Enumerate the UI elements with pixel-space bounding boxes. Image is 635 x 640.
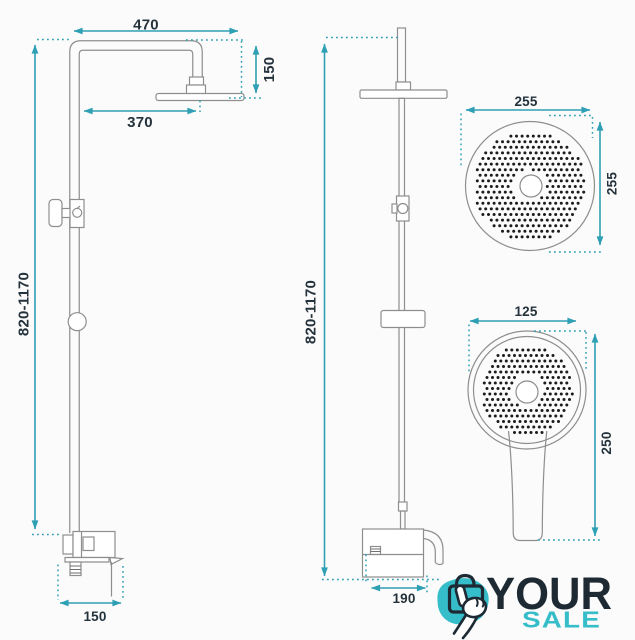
head-connector-icon <box>190 77 204 85</box>
slider-nub-front <box>392 204 397 213</box>
dim-label-height-range: 820-1170 <box>16 272 33 336</box>
rain-head-center-hole <box>520 175 542 197</box>
lower-pipe <box>399 98 405 502</box>
hand-shower-detail: 125 250 <box>468 304 614 541</box>
mixer-base-plate <box>65 558 109 563</box>
rain-head-front <box>360 90 447 98</box>
dim-label-hand-width: 125 <box>514 304 537 319</box>
dim-label-rain-width: 255 <box>514 94 537 109</box>
logo-word-sale: SALE <box>522 607 601 633</box>
hand-knuckle-line <box>483 601 484 607</box>
hose-tube <box>401 511 406 529</box>
spout-mouth <box>435 563 443 565</box>
mixer-knob-front <box>371 547 381 555</box>
dim-label-base-depth: 150 <box>83 609 106 624</box>
hose-nut <box>399 502 408 511</box>
spout-inner <box>424 539 436 563</box>
dim-label-arm-reach: 370 <box>127 114 153 131</box>
head-connector-base <box>187 85 206 94</box>
side-view: 470 150 370 820-1170 150 <box>16 17 279 625</box>
spout-outer <box>424 530 444 564</box>
rain-head-side <box>156 94 244 101</box>
slider-screw-icon <box>73 208 82 217</box>
front-view: 820-1170 190 <box>303 28 448 606</box>
rain-head-detail: 255 255 <box>461 94 620 252</box>
shower-set-dimension-diagram: 470 150 370 820-1170 150 <box>0 0 635 640</box>
dim-label-hand-height: 250 <box>599 431 614 454</box>
dim-label-top-width: 470 <box>133 17 159 34</box>
hand-shower-center-hole <box>516 381 538 403</box>
pipe-joint-ball <box>68 313 86 331</box>
mixer-left-box <box>63 535 73 554</box>
dim-label-base-width: 190 <box>392 591 415 606</box>
hand-knuckle-line <box>477 599 478 606</box>
slider-knob <box>49 200 62 227</box>
plate-connector <box>396 82 411 90</box>
dim-label-head-offset: 150 <box>261 57 278 83</box>
slider-screw-front-icon <box>398 204 408 214</box>
upper-pipe <box>398 28 406 82</box>
soap-dish <box>381 311 425 328</box>
dim-label-height-range-front: 820-1170 <box>303 280 320 344</box>
dim-label-rain-height: 255 <box>605 172 620 195</box>
yoursale-logo: YOUR SALE <box>437 568 612 638</box>
